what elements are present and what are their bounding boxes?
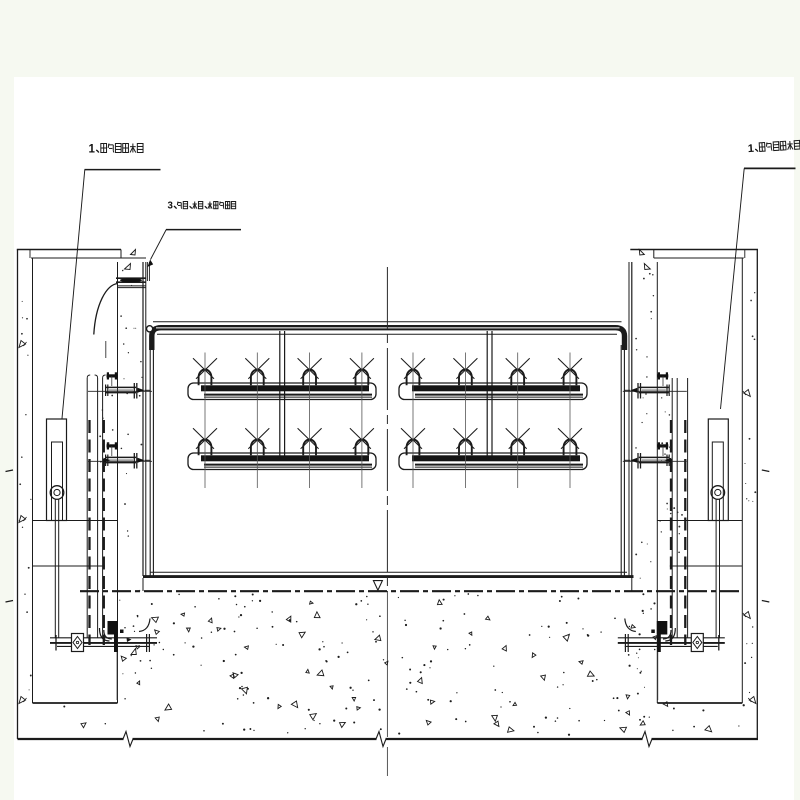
- svg-text:3: 3: [168, 201, 174, 212]
- svg-text:1: 1: [89, 144, 96, 156]
- svg-text:1: 1: [747, 143, 754, 155]
